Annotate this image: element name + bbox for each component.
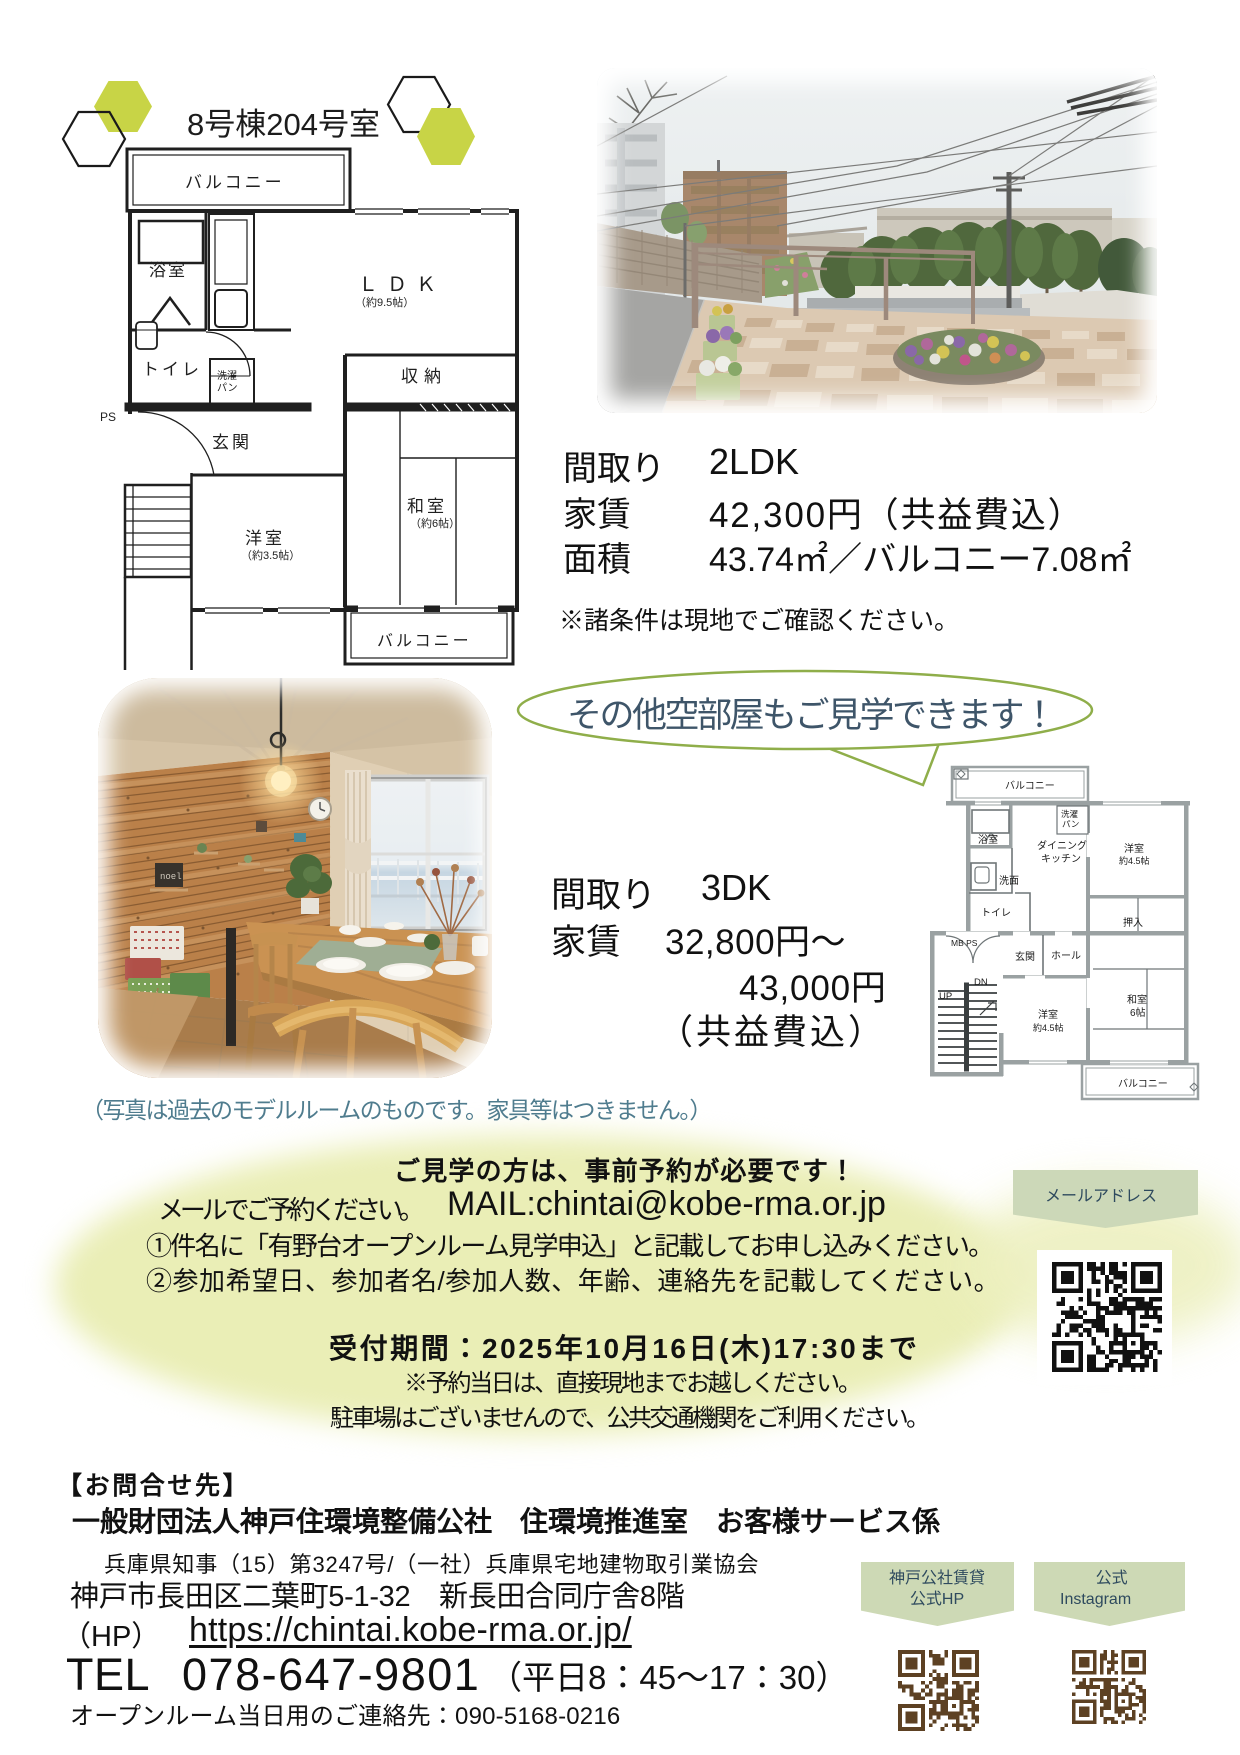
- svg-text:洗濯: 洗濯: [1061, 809, 1079, 819]
- svg-text:トイレ: トイレ: [981, 908, 1011, 919]
- svg-text:洋室: 洋室: [1038, 1008, 1058, 1021]
- svg-text:約4.5帖: 約4.5帖: [1033, 1022, 1064, 1033]
- svg-text:収納: 収納: [401, 367, 447, 386]
- svg-text:パン: パン: [1062, 819, 1079, 829]
- svg-text:玄関: 玄関: [1015, 950, 1035, 963]
- svg-text:6帖: 6帖: [1130, 1006, 1146, 1019]
- svg-text:バルコニー: バルコニー: [1005, 780, 1055, 792]
- svg-text:洋室: 洋室: [1124, 842, 1144, 855]
- svg-text:押入: 押入: [1123, 916, 1143, 929]
- svg-text:バルコニー: バルコニー: [377, 633, 472, 650]
- svg-text:ダイニング: ダイニング: [1037, 839, 1087, 852]
- svg-text:バルコニー: バルコニー: [1118, 1078, 1168, 1090]
- svg-text:浴室: 浴室: [149, 261, 187, 280]
- svg-text:和室: 和室: [1127, 994, 1147, 1006]
- svg-text:UP: UP: [939, 991, 952, 1002]
- svg-text:洗面: 洗面: [999, 875, 1019, 887]
- svg-text:浴室: 浴室: [978, 833, 998, 846]
- svg-text:ホール: ホール: [1051, 950, 1081, 962]
- svg-text:（約3.5帖）: （約3.5帖）: [241, 548, 300, 562]
- svg-text:（約9.5帖）: （約9.5帖）: [355, 295, 414, 309]
- svg-text:玄関: 玄関: [212, 433, 252, 452]
- svg-text:PS: PS: [100, 410, 116, 424]
- svg-text:（約6帖）: （約6帖）: [410, 516, 460, 530]
- svg-text:洋室: 洋室: [245, 529, 285, 548]
- svg-text:約4.5帖: 約4.5帖: [1119, 855, 1150, 866]
- svg-text:パン: パン: [217, 382, 238, 394]
- svg-text:MB PS: MB PS: [951, 938, 978, 948]
- svg-text:バルコニー: バルコニー: [185, 173, 285, 192]
- svg-text:和室: 和室: [407, 497, 447, 516]
- svg-text:洗濯: 洗濯: [217, 369, 237, 382]
- svg-text:トイレ: トイレ: [142, 360, 202, 379]
- svg-text:キッチン: キッチン: [1041, 853, 1081, 865]
- svg-text:ＬＤＫ: ＬＤＫ: [358, 274, 445, 296]
- svg-text:DN: DN: [974, 977, 988, 988]
